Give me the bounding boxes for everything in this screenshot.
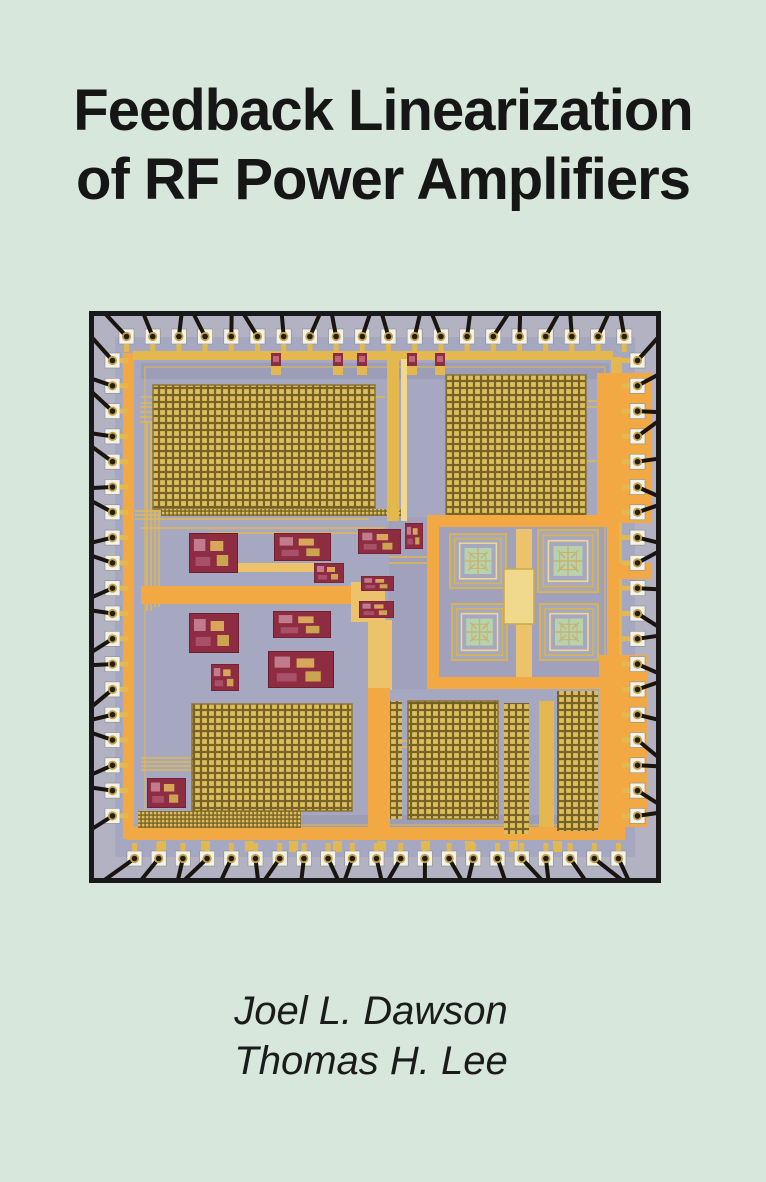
book-cover: Feedback Linearization of RF Power Ampli… [0, 0, 766, 1182]
horizontal-power-bus [141, 586, 367, 604]
capacitor-strip-bottom-left [138, 811, 301, 828]
capacitor-array-bottom-left [192, 704, 352, 811]
right-power-plane-upper [597, 373, 651, 523]
inductor-top-right [538, 530, 598, 592]
inductor-center-block [504, 569, 534, 624]
vertical-power-bus [368, 688, 390, 830]
author-name-2: Thomas H. Lee [0, 1036, 742, 1086]
authors: Joel L. Dawson Thomas H. Lee [0, 986, 742, 1086]
capacitor-fringe-strip [161, 509, 401, 516]
book-title-line2: of RF Power Amplifiers [0, 145, 766, 214]
author-name-1: Joel L. Dawson [0, 986, 742, 1036]
chip-die-illustration [89, 311, 661, 883]
inductor-bottom-left [452, 604, 507, 660]
inductor-top-left [450, 534, 506, 588]
chip-die-photo [89, 311, 661, 883]
book-title: Feedback Linearization of RF Power Ampli… [0, 76, 766, 214]
inductor-bottom-right [540, 604, 598, 660]
capacitor-array-top-right [446, 375, 586, 516]
book-title-line1: Feedback Linearization [0, 76, 766, 145]
capacitor-array-top-left [153, 385, 375, 509]
